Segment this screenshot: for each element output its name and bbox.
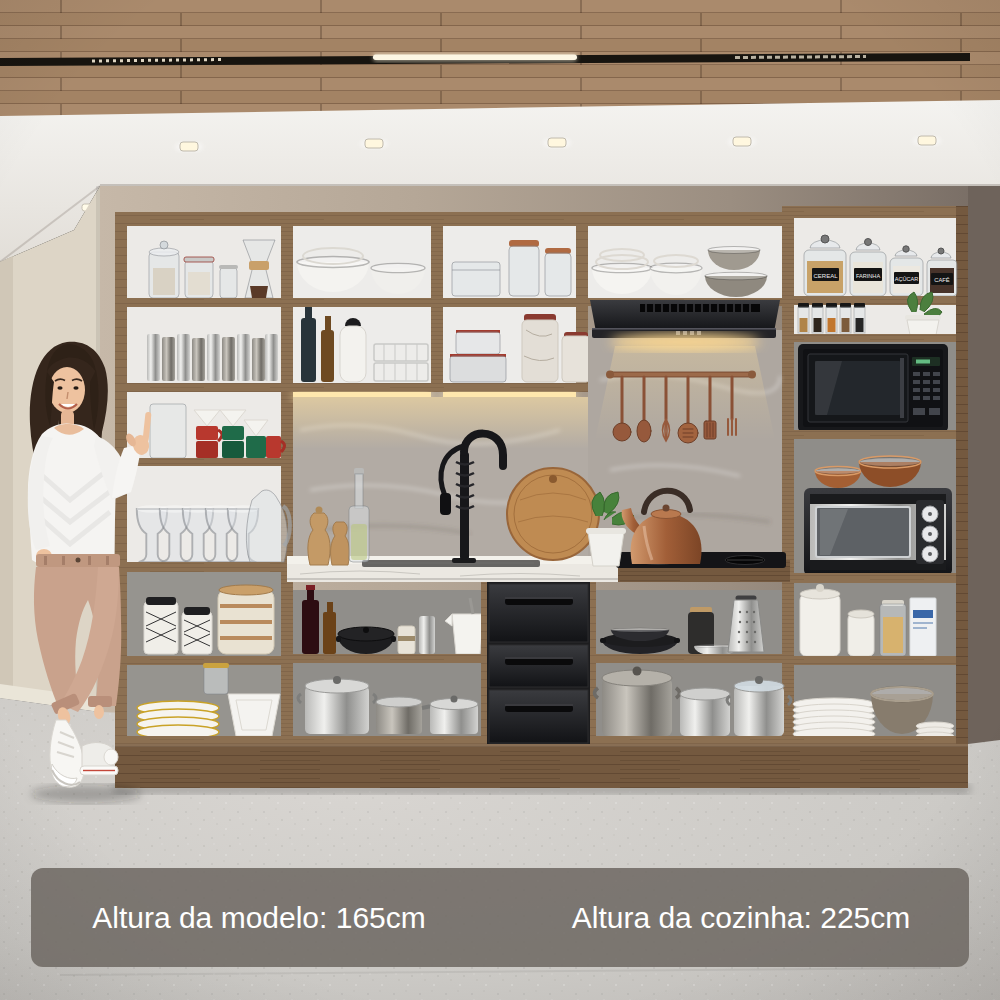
caption-model-height: Altura da modelo: 165cm xyxy=(92,901,426,934)
caption-bar: Altura da modelo: 165cm Altura da cozinh… xyxy=(31,868,969,967)
caption-kitchen-height: Altura da cozinha: 225cm xyxy=(572,901,911,934)
product-photo-kitchen: CEREAL FARINHA AÇÚCAR xyxy=(0,0,1000,1000)
photo-vignette xyxy=(0,0,1000,1000)
